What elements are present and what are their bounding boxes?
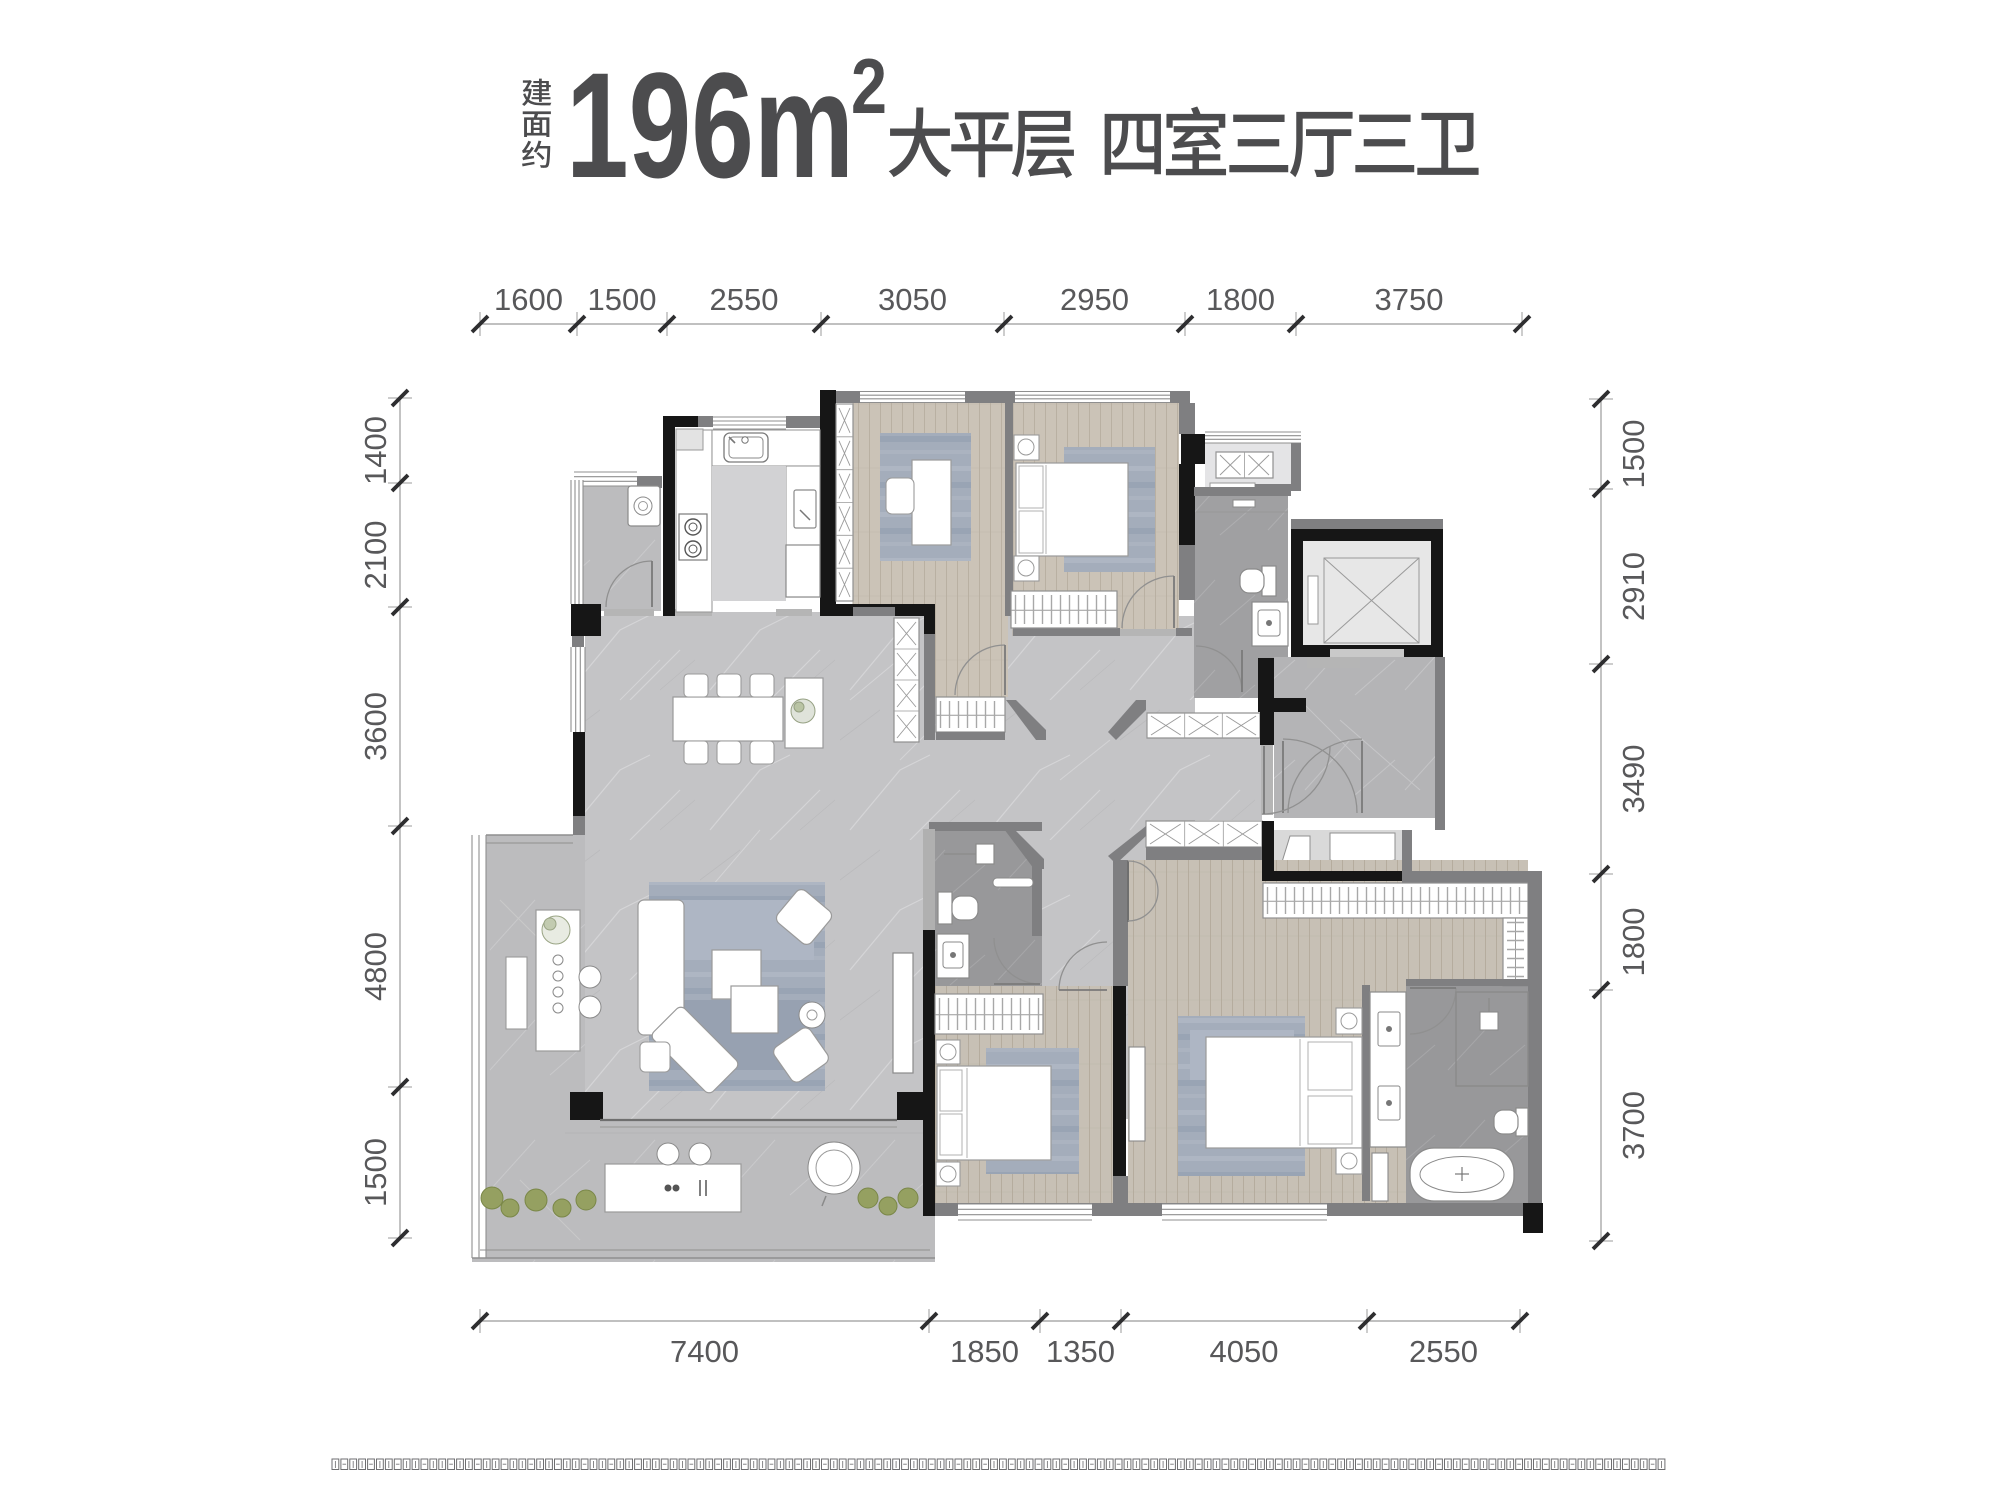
svg-text:3050: 3050 (878, 282, 947, 317)
svg-text:4800: 4800 (358, 932, 393, 1001)
svg-text:2: 2 (851, 42, 887, 130)
svg-text:1600: 1600 (494, 282, 563, 317)
svg-text:2100: 2100 (358, 521, 393, 590)
svg-text:3700: 3700 (1616, 1091, 1651, 1160)
svg-text:2550: 2550 (710, 282, 779, 317)
svg-text:1500: 1500 (358, 1138, 393, 1207)
svg-text:1500: 1500 (1616, 420, 1651, 489)
svg-text:2950: 2950 (1060, 282, 1129, 317)
svg-text:1350: 1350 (1046, 1334, 1115, 1369)
svg-text:3490: 3490 (1616, 745, 1651, 814)
svg-text:3600: 3600 (358, 692, 393, 761)
svg-text:1800: 1800 (1616, 908, 1651, 977)
svg-text:2910: 2910 (1616, 552, 1651, 621)
svg-text:1400: 1400 (358, 416, 393, 485)
svg-text:3750: 3750 (1375, 282, 1444, 317)
svg-text:2550: 2550 (1409, 1334, 1478, 1369)
svg-text:1850: 1850 (950, 1334, 1019, 1369)
svg-text:1800: 1800 (1206, 282, 1275, 317)
svg-text:4050: 4050 (1210, 1334, 1279, 1369)
svg-text:7400: 7400 (670, 1334, 739, 1369)
svg-text:196m: 196m (566, 41, 854, 209)
svg-text:1500: 1500 (588, 282, 657, 317)
